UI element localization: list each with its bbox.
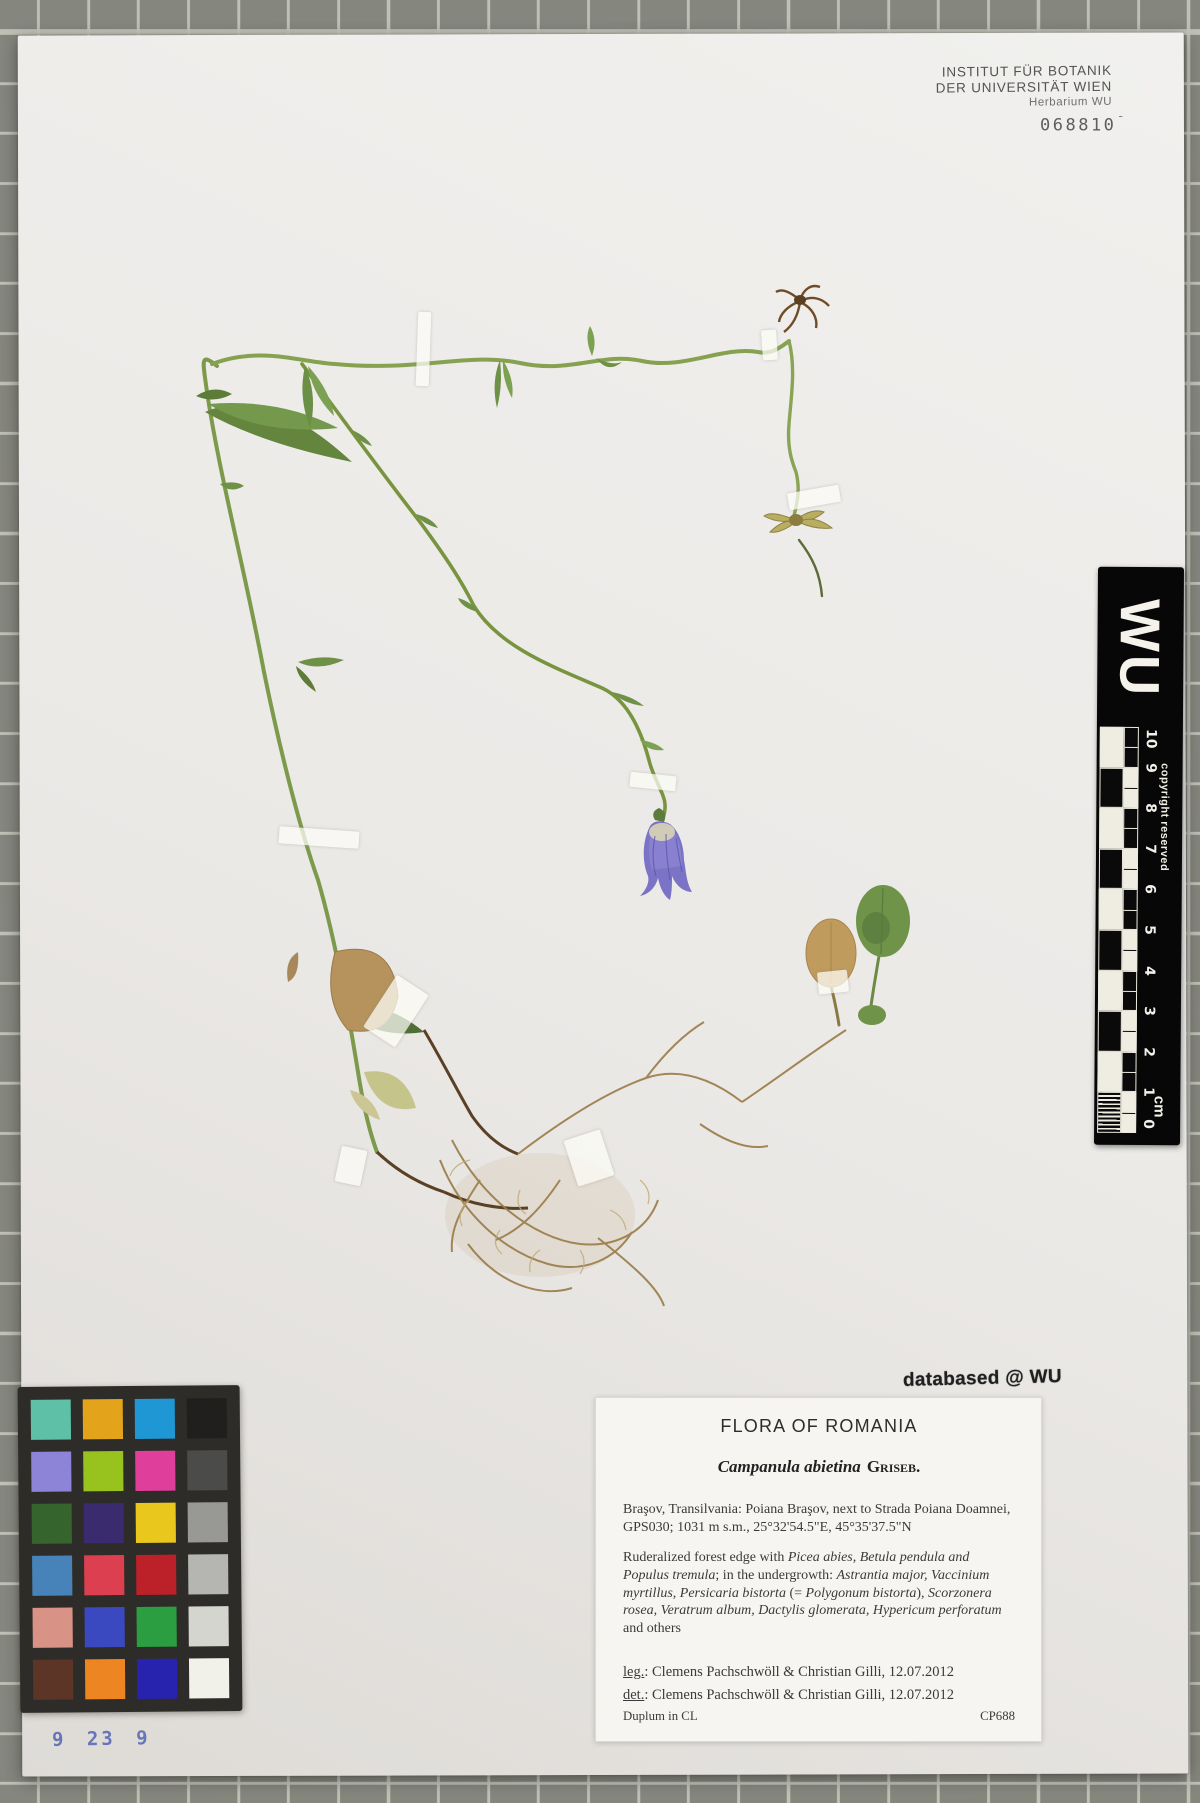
color-chip bbox=[85, 1659, 125, 1699]
collection-code: CP688 bbox=[980, 1709, 1015, 1724]
color-chip bbox=[83, 1399, 123, 1439]
species-authority: Griseb. bbox=[867, 1457, 921, 1476]
ruler-copyright: copyright reserved bbox=[1156, 729, 1173, 905]
color-chip bbox=[84, 1503, 124, 1543]
databased-stamp: databased @ WU bbox=[903, 1366, 1062, 1392]
ruler-cm-segment bbox=[1098, 1011, 1139, 1052]
label-title: FLORA OF ROMANIA bbox=[623, 1416, 1015, 1437]
color-chip bbox=[31, 1400, 71, 1440]
color-chip bbox=[83, 1451, 123, 1491]
ruler-cm-segment bbox=[1097, 1092, 1138, 1133]
species-name: Campanula abietina bbox=[718, 1457, 861, 1476]
scale-bar-ruler: WU 012345678910 copyright reserved cm bbox=[1094, 567, 1184, 1146]
color-chip bbox=[189, 1658, 229, 1698]
ruler-cm-segment bbox=[1098, 930, 1139, 971]
color-chip bbox=[137, 1607, 177, 1647]
tape-strip bbox=[761, 330, 778, 361]
collector-lines: leg.: Clemens Pachschwöll & Christian Gi… bbox=[623, 1661, 1015, 1706]
color-chip bbox=[135, 1451, 175, 1491]
accession-number: 068810¯ bbox=[1040, 114, 1127, 136]
color-chip bbox=[187, 1398, 227, 1438]
photo-background: INSTITUT FÜR BOTANIK DER UNIVERSITÄT WIE… bbox=[0, 0, 1200, 1803]
color-chip bbox=[136, 1555, 176, 1595]
ruler-cm-segment bbox=[1100, 727, 1141, 768]
tape-strip bbox=[416, 312, 432, 386]
duplum-note: Duplum in CL bbox=[623, 1709, 698, 1724]
species-name-line: Campanula abietinaGriseb. bbox=[623, 1457, 1015, 1477]
color-chip bbox=[189, 1606, 229, 1646]
locality-text: Braşov, Transilvania: Poiana Braşov, nex… bbox=[623, 1501, 1015, 1536]
habitat-text: Ruderalized forest edge with Picea abies… bbox=[623, 1549, 1015, 1637]
ruler-tick-label: 2 bbox=[1140, 1043, 1158, 1061]
ruler-tick-label: 5 bbox=[1140, 921, 1158, 939]
det-value: : Clemens Pachschwöll & Christian Gilli,… bbox=[644, 1687, 954, 1703]
ruler-tick-label: 3 bbox=[1140, 1002, 1158, 1020]
color-chip bbox=[188, 1554, 228, 1594]
accession-number-suffix: ¯ bbox=[1117, 114, 1126, 127]
handwritten-number: 9 23 9 bbox=[52, 1727, 151, 1751]
ruler-unit-label: cm bbox=[1148, 1083, 1170, 1129]
color-chip bbox=[188, 1502, 228, 1542]
institution-stamp-line3: Herbarium WU bbox=[880, 95, 1112, 111]
color-chip bbox=[32, 1504, 72, 1544]
color-calibration-card bbox=[18, 1385, 243, 1713]
label-footer: Duplum in CL CP688 bbox=[623, 1709, 1015, 1724]
ruler-cm-segment bbox=[1098, 889, 1139, 930]
institution-stamp: INSTITUT FÜR BOTANIK DER UNIVERSITÄT WIE… bbox=[880, 63, 1112, 111]
color-chip bbox=[33, 1660, 73, 1700]
ruler-cm-segment bbox=[1099, 849, 1140, 890]
color-chip bbox=[33, 1608, 73, 1648]
specimen-label: FLORA OF ROMANIA Campanula abietinaGrise… bbox=[595, 1397, 1042, 1742]
leg-line: leg.: Clemens Pachschwöll & Christian Gi… bbox=[623, 1661, 1015, 1683]
color-chip bbox=[84, 1555, 124, 1595]
ruler-cm-segment bbox=[1097, 1051, 1138, 1092]
leg-label: leg. bbox=[623, 1664, 644, 1680]
color-chip bbox=[32, 1556, 72, 1596]
ruler-cm-segment bbox=[1099, 767, 1140, 808]
ruler-cm-segment bbox=[1098, 970, 1139, 1011]
color-chip bbox=[31, 1452, 71, 1492]
ruler-tick-label: 4 bbox=[1140, 962, 1158, 980]
color-chip bbox=[136, 1503, 176, 1543]
ruler-cm-segment bbox=[1099, 808, 1140, 849]
accession-number-digits: 068810 bbox=[1040, 116, 1116, 136]
det-label: det. bbox=[623, 1687, 644, 1703]
ruler-wu-logo: WU bbox=[1097, 575, 1184, 722]
leg-value: : Clemens Pachschwöll & Christian Gilli,… bbox=[644, 1664, 954, 1680]
det-line: det.: Clemens Pachschwöll & Christian Gi… bbox=[623, 1684, 1015, 1706]
tape-strip bbox=[817, 969, 849, 994]
color-chip bbox=[137, 1659, 177, 1699]
ruler-scale bbox=[1097, 727, 1141, 1133]
color-checker-grid bbox=[31, 1398, 230, 1700]
color-chip bbox=[187, 1450, 227, 1490]
color-chip bbox=[85, 1607, 125, 1647]
color-chip bbox=[135, 1399, 175, 1439]
